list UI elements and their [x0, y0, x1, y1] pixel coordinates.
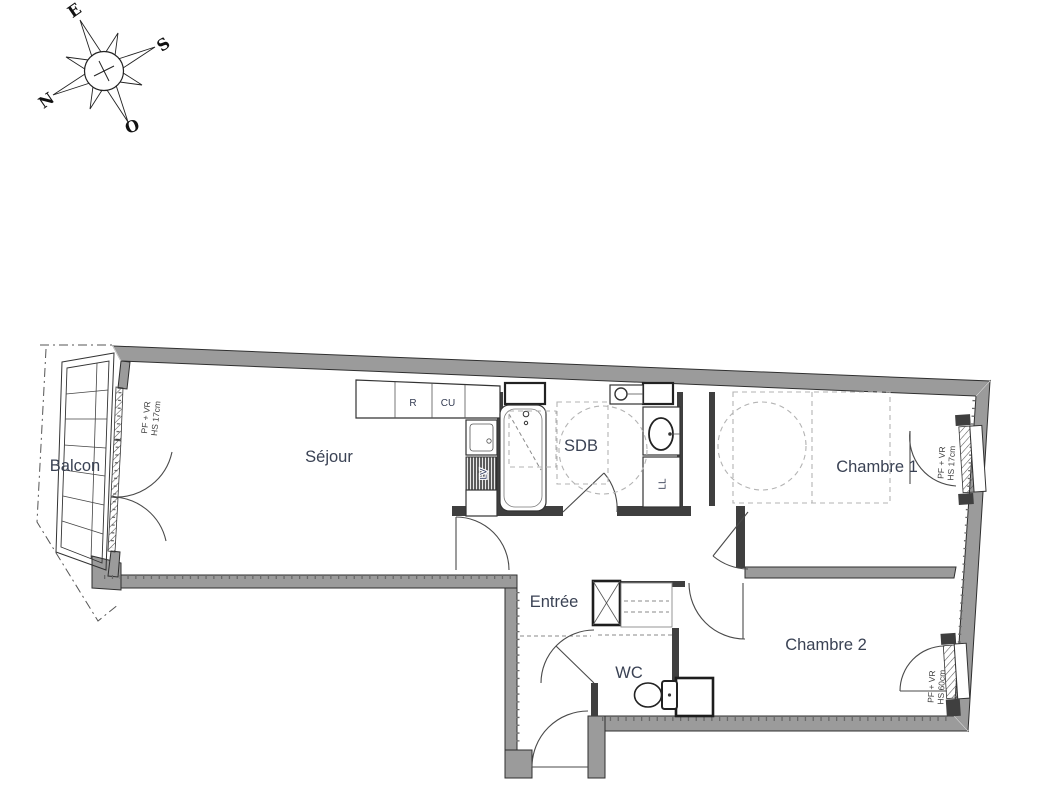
- compass-label-s: S: [153, 33, 173, 55]
- svg-text:HS 17cm: HS 17cm: [945, 445, 957, 480]
- chambre1-window-annotation: PF + VR HS 17cm: [935, 445, 957, 481]
- wall-chambre1-left: [709, 392, 715, 506]
- dishwasher-label: LV: [479, 468, 490, 480]
- balcony-window-fixed: [114, 387, 123, 440]
- chambre2-window-annotation: PF + VR HS 60cm: [925, 669, 947, 705]
- compass-rose: E S O N: [35, 0, 174, 138]
- sdb-top-cabinet-left: [505, 383, 545, 404]
- wc-duct: [676, 678, 713, 716]
- washing-machine-label: LL: [658, 478, 669, 490]
- chambre2-window-jamb: [941, 633, 957, 645]
- compass-label-n: N: [35, 88, 58, 112]
- room-label-wc: WC: [615, 664, 643, 682]
- kitchen-cabinet: [466, 490, 497, 516]
- svg-text:HS 60cm: HS 60cm: [935, 669, 947, 704]
- bathtub: [500, 405, 546, 511]
- balcony-door-annotation: PF + VR HS 17cm: [139, 399, 163, 436]
- compass-label-o: O: [122, 115, 142, 138]
- wall-corridor-left: [505, 588, 517, 750]
- toilet-flush-icon: [668, 693, 671, 696]
- room-label-sejour: Séjour: [305, 448, 353, 466]
- floor-plan: R CU LV LL: [0, 0, 1048, 800]
- chambre2-window-pillar: [946, 699, 961, 717]
- wall-entrance-stub-left: [505, 750, 532, 778]
- wall-wc-right: [672, 628, 679, 680]
- room-label-sdb: SDB: [564, 437, 598, 455]
- compass-label-e: E: [64, 0, 85, 22]
- chambre1-window-jamb: [955, 414, 971, 426]
- floor-plan-page: R CU LV LL: [0, 0, 1048, 800]
- room-label-chambre1: Chambre 1: [836, 458, 918, 476]
- wall-chambre1-chambre2: [745, 567, 956, 578]
- wall-entrance-stub-right: [588, 716, 605, 778]
- wall-bottom: [600, 716, 968, 731]
- wall-hall-right-stub: [736, 506, 745, 568]
- room-label-chambre2: Chambre 2: [785, 636, 867, 654]
- kitchen-counter: [356, 380, 500, 418]
- room-label-balcon: Balcon: [50, 457, 100, 475]
- chambre1-window-jamb: [958, 493, 974, 505]
- fridge-label: R: [409, 398, 416, 409]
- room-label-entree: Entrée: [530, 593, 579, 611]
- wall-wc-left: [591, 683, 598, 716]
- cooktop-label: CU: [441, 398, 455, 409]
- washbasin-tap-icon: [668, 432, 672, 436]
- sdb-top-cabinet-right: [643, 383, 673, 404]
- toilet-bowl: [635, 683, 662, 707]
- entry-closet: [621, 583, 672, 627]
